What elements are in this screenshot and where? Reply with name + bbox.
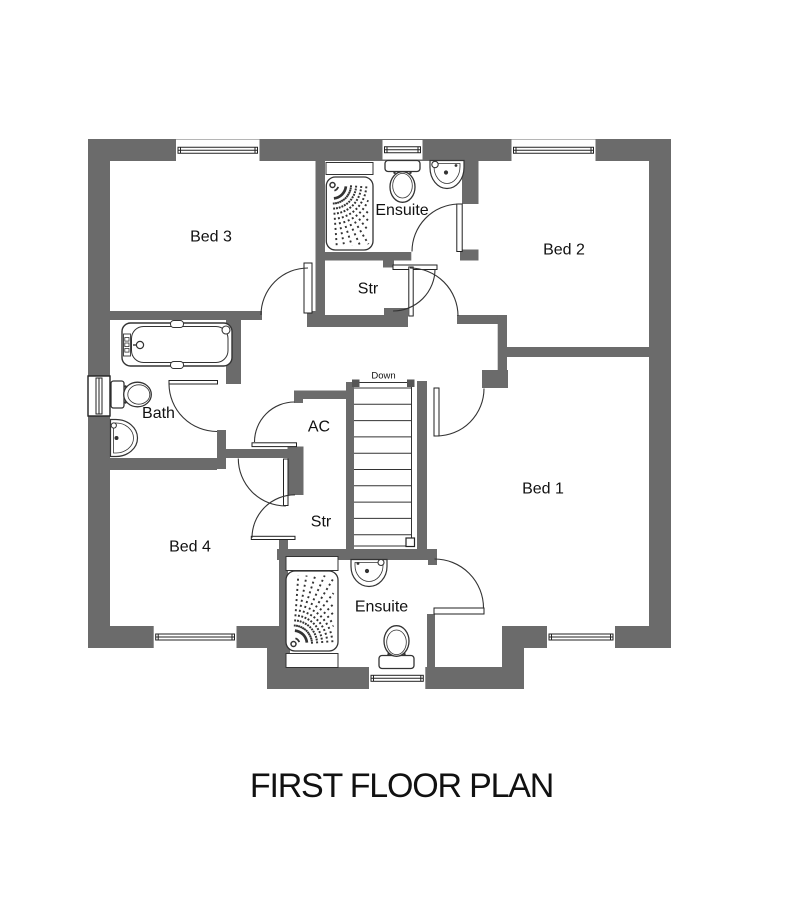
svg-text:Ensuite: Ensuite (355, 599, 408, 616)
svg-text:Bed 3: Bed 3 (190, 229, 232, 246)
svg-text:Bath: Bath (142, 405, 175, 422)
svg-text:Str: Str (311, 514, 332, 531)
svg-text:Bed 1: Bed 1 (522, 481, 564, 498)
svg-text:Ensuite: Ensuite (375, 202, 428, 219)
svg-text:Down: Down (371, 371, 395, 382)
svg-text:AC: AC (308, 419, 330, 436)
svg-text:Bed 4: Bed 4 (169, 539, 211, 556)
svg-text:FIRST FLOOR PLAN: FIRST FLOOR PLAN (250, 767, 553, 805)
svg-text:Bed 2: Bed 2 (543, 242, 585, 259)
svg-text:Str: Str (358, 281, 379, 298)
